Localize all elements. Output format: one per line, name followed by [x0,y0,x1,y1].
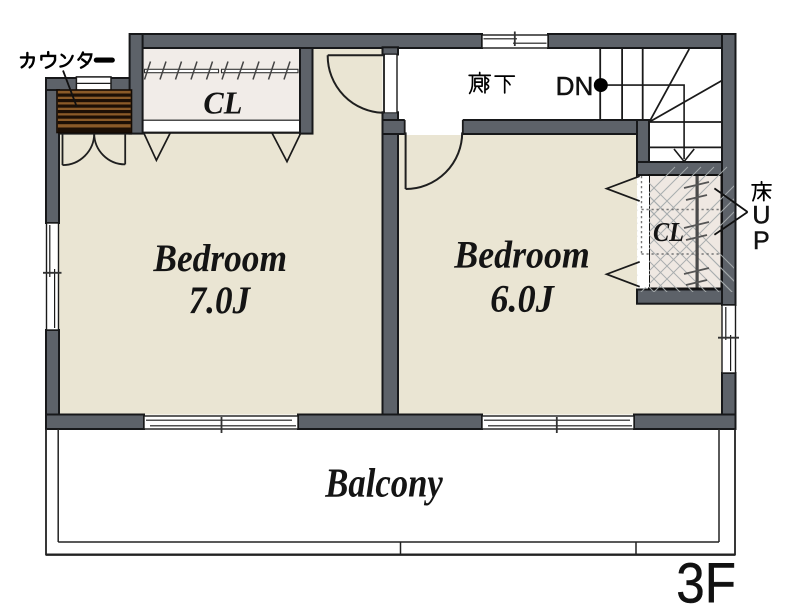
svg-text:3F: 3F [676,551,736,615]
svg-text:Bedroom: Bedroom [152,237,287,280]
svg-text:P: P [753,227,770,255]
svg-text:DN: DN [556,71,594,101]
svg-text:6.0J: 6.0J [490,277,555,320]
svg-text:CL: CL [653,217,684,247]
svg-text:CL: CL [203,84,242,120]
svg-text:7.0J: 7.0J [189,279,252,322]
svg-text:Bedroom: Bedroom [453,233,589,276]
svg-text:U: U [752,201,770,229]
svg-text:Balcony: Balcony [324,460,443,506]
